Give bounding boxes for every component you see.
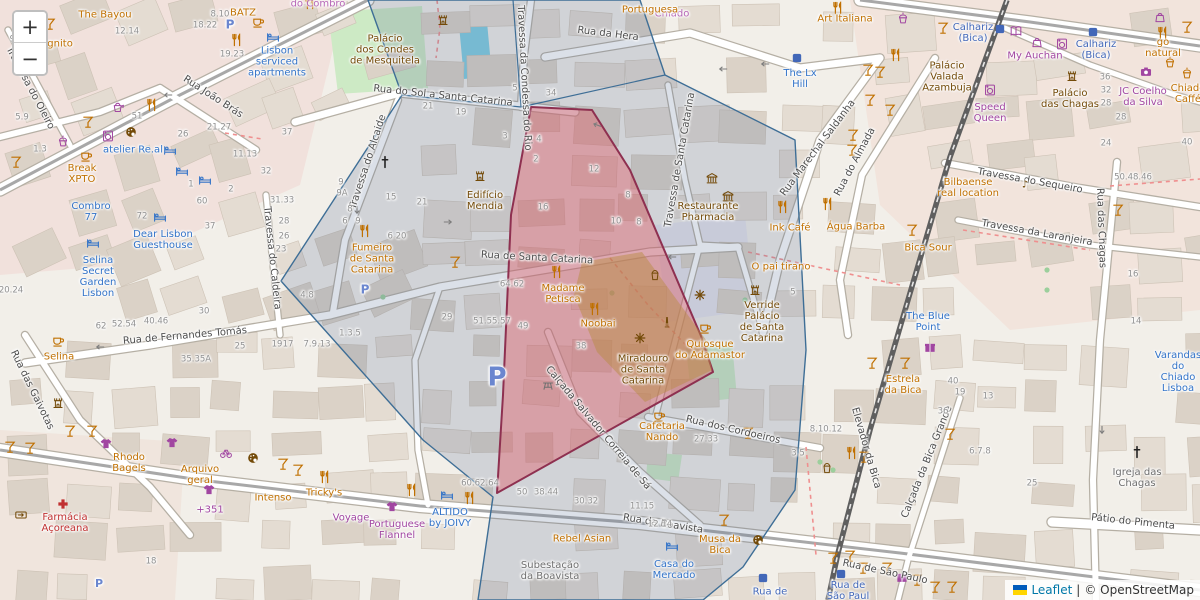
zoom-in-button[interactable]: + [14, 12, 46, 43]
building [924, 236, 959, 276]
glass-icon [279, 459, 287, 469]
palette-icon [753, 535, 763, 545]
building [933, 570, 969, 600]
building [834, 390, 874, 422]
glass-icon [859, 563, 867, 573]
building [318, 385, 364, 419]
building [222, 288, 264, 323]
transit-icon [1089, 28, 1097, 36]
building [934, 519, 964, 544]
tree [1044, 287, 1049, 292]
building [1079, 345, 1129, 387]
building [975, 241, 1016, 265]
building [57, 574, 87, 600]
ukraine-flag-icon [1013, 585, 1027, 595]
tree [1044, 267, 1049, 272]
tree [817, 459, 822, 464]
building [977, 386, 1015, 408]
building [160, 434, 209, 468]
building [1031, 482, 1074, 507]
gift-icon [897, 574, 907, 582]
building [1141, 474, 1186, 511]
building [10, 378, 42, 405]
building [1138, 141, 1191, 183]
building [421, 524, 455, 550]
building [160, 276, 207, 316]
palette-icon [126, 127, 136, 137]
shirt-icon [204, 485, 215, 494]
building [973, 340, 1024, 364]
glass-icon [868, 358, 876, 368]
building [116, 525, 165, 552]
building [823, 12, 853, 42]
building [1176, 392, 1200, 426]
cutlery-icon [408, 484, 415, 495]
building [1091, 285, 1132, 320]
building [1134, 437, 1165, 475]
palette-icon [248, 453, 258, 463]
building [273, 391, 319, 419]
building [54, 520, 108, 560]
building [1025, 380, 1057, 412]
building [929, 335, 963, 370]
building [778, 572, 815, 600]
building [66, 484, 112, 519]
tree [830, 467, 835, 472]
building [261, 337, 294, 370]
building [170, 387, 199, 417]
transit-icon [837, 570, 845, 578]
leaflet-link[interactable]: Leaflet [1031, 583, 1072, 597]
building [732, 4, 780, 26]
building [726, 57, 766, 93]
building [311, 580, 359, 600]
building [263, 565, 312, 600]
glass-icon [294, 465, 302, 475]
oneway-arrow-icon [720, 67, 727, 71]
building [368, 433, 409, 462]
asterisk-icon [635, 333, 645, 343]
building [1024, 345, 1067, 371]
building [1187, 436, 1200, 477]
building [877, 477, 917, 505]
zoom-control[interactable]: + − [12, 10, 48, 76]
building [7, 478, 49, 515]
building [172, 341, 218, 378]
glass-icon [848, 145, 856, 155]
building [364, 520, 397, 546]
map-canvas[interactable] [0, 0, 1200, 600]
building [835, 578, 876, 600]
building [15, 570, 48, 600]
building [976, 96, 1019, 119]
attribution-separator: | [1076, 583, 1080, 597]
building [923, 288, 954, 316]
asterisk-icon [695, 290, 705, 300]
building [1186, 333, 1200, 359]
building [216, 431, 250, 452]
building [1192, 483, 1200, 522]
building [1026, 97, 1074, 140]
transit-icon [759, 574, 767, 582]
building [262, 520, 291, 549]
building [1033, 426, 1063, 464]
building [1138, 297, 1182, 321]
building [272, 431, 322, 456]
building [112, 386, 158, 428]
gift-icon [925, 344, 935, 352]
building [885, 12, 936, 53]
building [321, 518, 369, 545]
transit-icon [793, 54, 801, 62]
building [370, 578, 400, 600]
osm-link[interactable]: © OpenStreetMap [1084, 583, 1194, 597]
cup-icon [54, 338, 64, 346]
building [216, 578, 254, 600]
transit-icon [996, 25, 1004, 33]
building [1034, 529, 1074, 568]
building [986, 61, 1037, 97]
castle-icon [54, 399, 62, 408]
map-container[interactable]: Rua João BrásTravessa do OleiroRua do So… [0, 0, 1200, 600]
zoom-out-button[interactable]: − [14, 43, 46, 74]
attribution-bar: Leaflet | © OpenStreetMap [1005, 580, 1200, 600]
building [822, 434, 859, 473]
building [210, 380, 241, 411]
